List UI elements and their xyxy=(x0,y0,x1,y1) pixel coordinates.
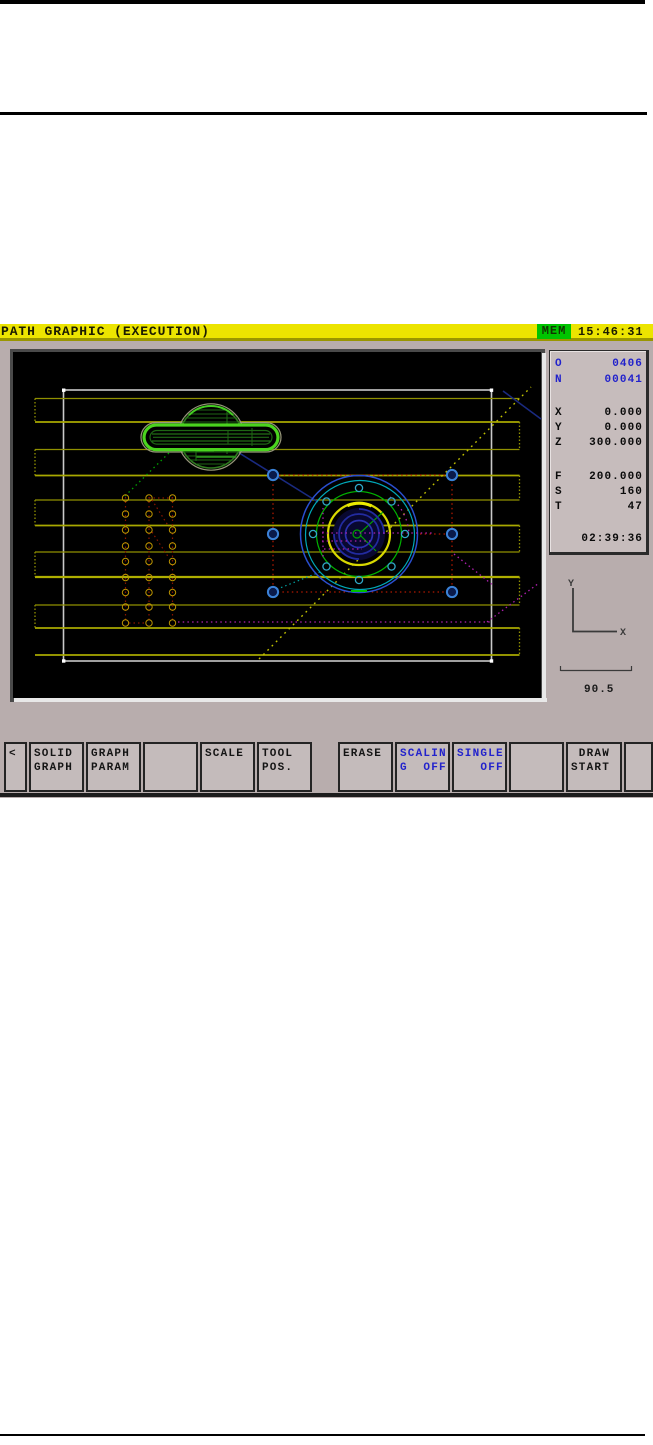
svg-text:Y: Y xyxy=(568,579,574,590)
svg-text:X: X xyxy=(620,628,626,639)
svg-text:90.5: 90.5 xyxy=(584,684,614,696)
